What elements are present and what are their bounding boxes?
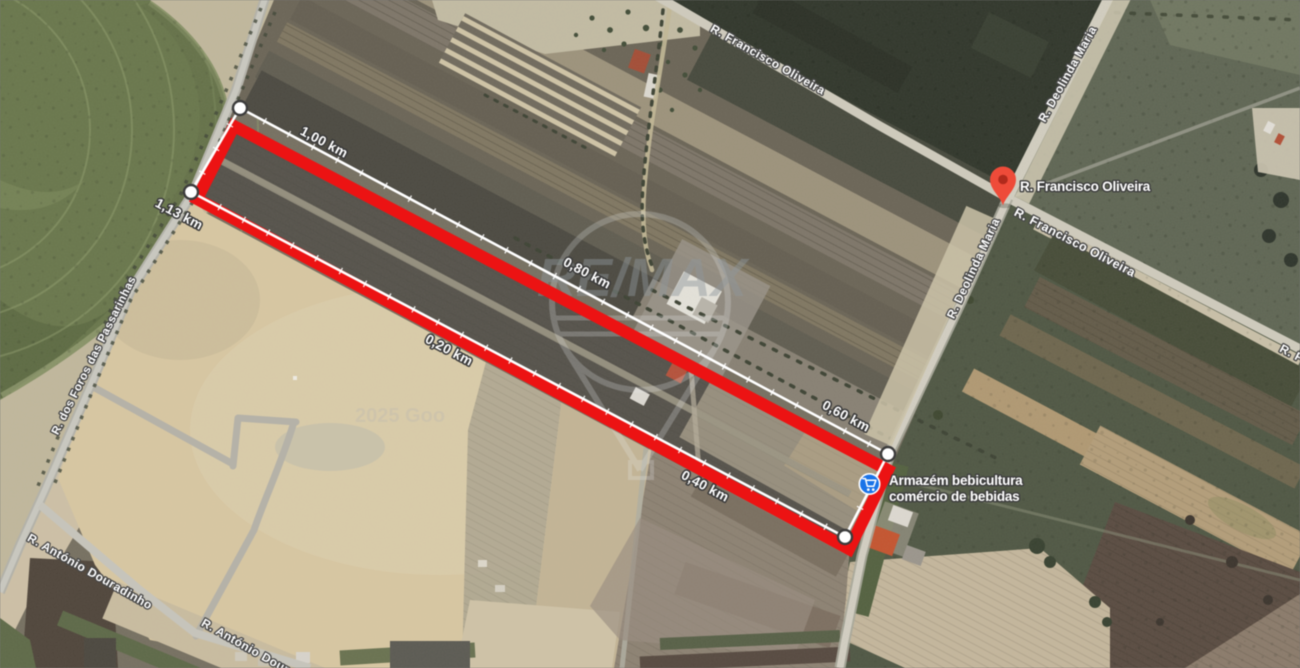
svg-text:2025 Goo: 2025 Goo <box>355 405 445 427</box>
svg-text:comércio de bebidas: comércio de bebidas <box>889 489 1020 504</box>
svg-text:Armazém bebicultura: Armazém bebicultura <box>889 473 1023 488</box>
svg-text:R. Francisco Oliveira: R. Francisco Oliveira <box>1020 179 1151 194</box>
